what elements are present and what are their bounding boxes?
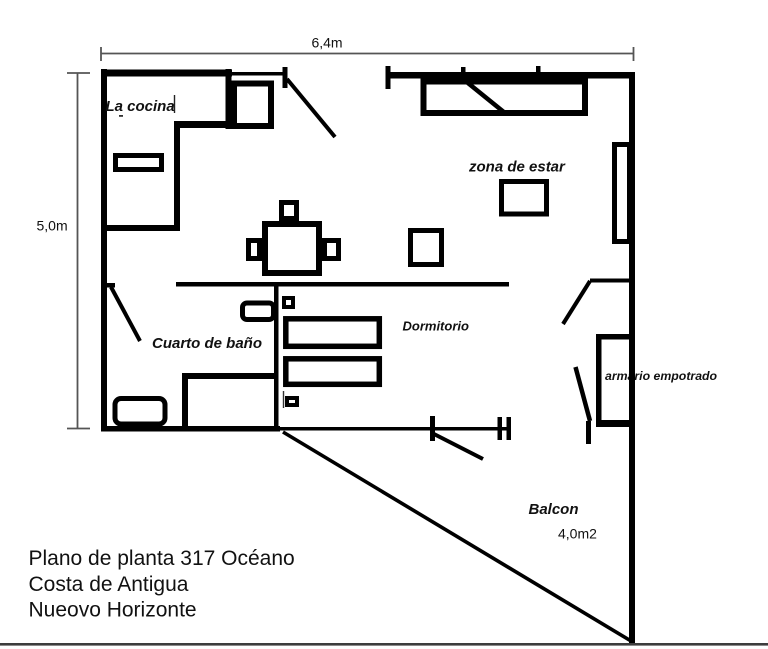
svg-text:Costa de Antigua: Costa de Antigua	[29, 573, 189, 596]
svg-text:Cuarto de baño: Cuarto de baño	[152, 335, 262, 352]
svg-text:Nueovo Horizonte: Nueovo Horizonte	[29, 599, 197, 622]
svg-text:Balcon: Balcon	[529, 501, 579, 518]
svg-text:Dormitorio: Dormitorio	[403, 319, 470, 334]
svg-text:zona de estar: zona de estar	[468, 159, 566, 176]
svg-text:Plano de planta 317 Océano: Plano de planta 317 Océano	[29, 547, 295, 570]
svg-text:5,0m: 5,0m	[37, 218, 68, 234]
svg-text:armario empotrado: armario empotrado	[605, 369, 718, 383]
svg-text:La cocina: La cocina	[106, 98, 175, 115]
svg-text:6,4m: 6,4m	[311, 35, 342, 51]
svg-text:4,0m2: 4,0m2	[558, 526, 597, 542]
